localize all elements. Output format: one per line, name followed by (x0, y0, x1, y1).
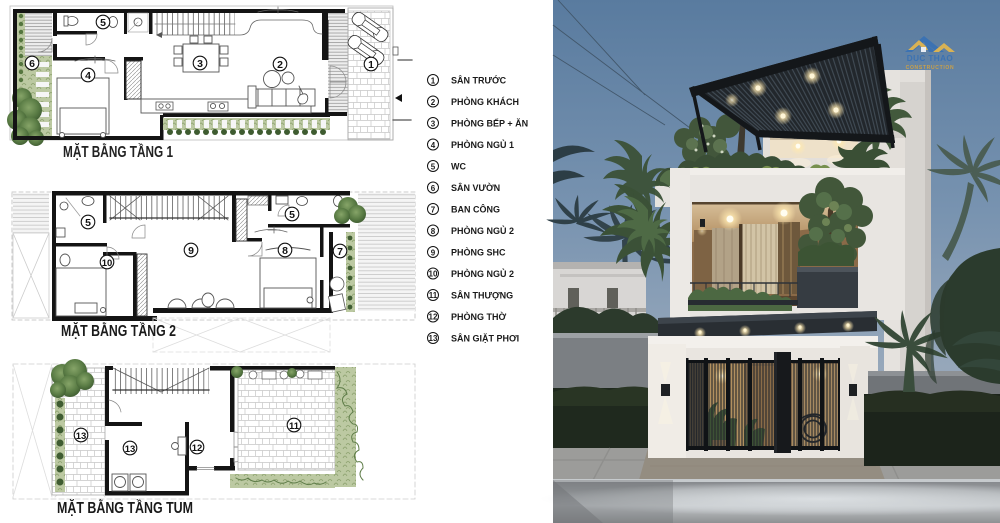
svg-text:PHÒNG THỜ: PHÒNG THỜ (451, 311, 507, 322)
svg-text:7: 7 (337, 246, 343, 258)
svg-text:BAN CÔNG: BAN CÔNG (451, 204, 500, 215)
svg-text:CONSTRUCTION: CONSTRUCTION (906, 65, 955, 71)
svg-text:MẶT BẰNG TẦNG TUM: MẶT BẰNG TẦNG TUM (57, 499, 193, 517)
svg-text:10: 10 (102, 258, 113, 269)
svg-text:SÂN TRƯỚC: SÂN TRƯỚC (451, 75, 507, 86)
svg-text:PHÒNG BẾP + ĂN: PHÒNG BẾP + ĂN (451, 118, 528, 129)
svg-text:PHÒNG SHC: PHÒNG SHC (451, 247, 506, 258)
svg-text:PHÒNG NGỦ 2: PHÒNG NGỦ 2 (451, 225, 514, 236)
svg-text:2: 2 (277, 59, 283, 71)
svg-text:13: 13 (76, 431, 87, 442)
svg-text:11: 11 (289, 421, 300, 432)
svg-text:MẶT BẰNG TẦNG 2: MẶT BẰNG TẦNG 2 (61, 322, 176, 340)
svg-text:2: 2 (431, 98, 436, 107)
svg-text:13: 13 (125, 444, 136, 455)
svg-text:SÂN GIẶT PHƠI: SÂN GIẶT PHƠI (451, 333, 519, 344)
svg-text:MẶT BẰNG TẦNG 1: MẶT BẰNG TẦNG 1 (63, 143, 173, 161)
svg-text:WC: WC (451, 162, 466, 172)
svg-text:1: 1 (368, 59, 374, 71)
svg-text:9: 9 (431, 249, 436, 258)
svg-text:4: 4 (85, 70, 91, 82)
svg-text:11: 11 (429, 291, 438, 300)
svg-text:8: 8 (282, 245, 288, 257)
svg-text:DUC THAO: DUC THAO (907, 54, 954, 63)
svg-text:SÂN VƯỜN: SÂN VƯỜN (451, 182, 500, 193)
svg-text:10: 10 (429, 270, 438, 279)
svg-text:PHÒNG NGỦ 2: PHÒNG NGỦ 2 (451, 268, 514, 279)
svg-text:PHÒNG KHÁCH: PHÒNG KHÁCH (451, 96, 519, 107)
svg-text:6: 6 (431, 184, 436, 193)
svg-text:3: 3 (197, 58, 203, 70)
svg-text:PHÒNG NGỦ 1: PHÒNG NGỦ 1 (451, 139, 514, 150)
svg-text:1: 1 (431, 77, 436, 86)
svg-text:5: 5 (289, 209, 295, 221)
svg-text:6: 6 (29, 58, 35, 70)
svg-text:13: 13 (429, 334, 438, 343)
svg-text:4: 4 (431, 141, 436, 150)
svg-text:3: 3 (431, 120, 436, 129)
svg-text:12: 12 (192, 443, 203, 454)
svg-text:7: 7 (431, 206, 436, 215)
svg-text:9: 9 (188, 245, 194, 257)
svg-text:8: 8 (431, 227, 436, 236)
svg-text:5: 5 (100, 17, 106, 29)
svg-text:5: 5 (431, 163, 436, 172)
svg-text:12: 12 (429, 313, 438, 322)
svg-text:SÂN THƯỢNG: SÂN THƯỢNG (451, 290, 513, 301)
svg-text:5: 5 (85, 217, 91, 229)
